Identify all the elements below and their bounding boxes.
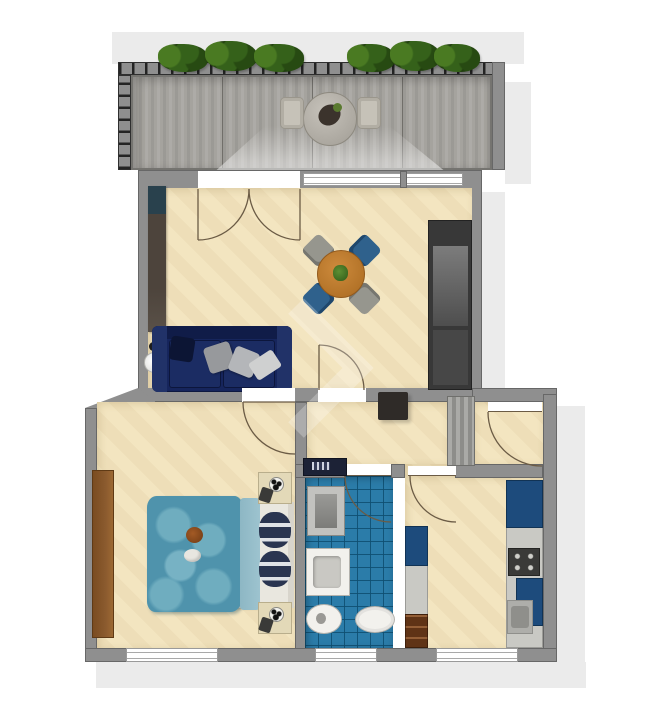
bidet-drain — [316, 613, 326, 624]
hallway-floor — [307, 402, 447, 464]
dining-table-plant — [333, 265, 348, 281]
balcony-left-railing — [118, 75, 131, 170]
shower-tray — [315, 494, 337, 528]
bathroom-door-leaf — [345, 466, 391, 476]
balcony-chair-left — [280, 97, 304, 129]
corridor-door-leaf — [488, 402, 542, 412]
planter-box-6 — [434, 44, 480, 72]
vanity-basin — [313, 556, 341, 588]
kitchen-top-wall — [455, 464, 543, 478]
bed-headboard — [288, 502, 294, 608]
bathroom-top-wall-right — [391, 464, 405, 478]
kitchen-door-leaf — [408, 466, 456, 476]
sofa-pillow-navy — [168, 335, 195, 362]
kitchen-drawer-unit — [405, 614, 428, 648]
hallway-wall-cabinet — [378, 392, 408, 420]
shadow-lower-right — [557, 406, 585, 668]
balcony-right-wall — [492, 62, 505, 170]
sofa-arm-left — [152, 326, 167, 392]
balcony-chair-right — [357, 97, 381, 129]
kitchen-fridge-cabinet — [506, 480, 543, 528]
planter-box-5 — [390, 41, 440, 71]
shadow-living-right — [482, 192, 505, 404]
sideboard — [148, 186, 166, 332]
wall-niche-lower — [433, 330, 468, 385]
hall-door-opening — [318, 388, 366, 402]
utility-shaft — [447, 396, 475, 466]
balcony-window — [303, 173, 463, 186]
bed-folded-blanket — [240, 498, 260, 610]
bedroom-window — [126, 648, 218, 662]
bed-toy-teddy — [186, 527, 203, 543]
balcony-door-opening — [198, 171, 300, 188]
washing-machine-display — [312, 462, 330, 470]
kitchen-cooktop — [508, 548, 540, 576]
wardrobe — [92, 470, 114, 638]
planter-box-2 — [205, 41, 257, 71]
planter-box-1 — [158, 44, 208, 72]
shadow-balcony-right — [505, 82, 531, 184]
planter-box-4 — [347, 44, 395, 72]
bedroom-door-opening — [242, 388, 295, 402]
kitchen-window — [436, 648, 518, 662]
sofa-arm-right — [277, 326, 292, 392]
planter-box-3 — [254, 44, 304, 72]
toilet — [355, 606, 395, 633]
bed-toy-white — [184, 549, 201, 562]
bathroom-window — [315, 648, 377, 662]
kitchen-right-wall — [543, 394, 557, 662]
shadow-bottom — [96, 662, 586, 688]
bed-pillow-2 — [259, 551, 291, 587]
balcony-table-plant — [333, 103, 342, 112]
wall-niche-inner — [433, 246, 468, 326]
balcony-window-mullion — [400, 171, 407, 188]
floor-plan — [0, 0, 648, 724]
bed-pillow-1 — [259, 512, 291, 548]
kitchen-left-cabinet-blue — [405, 526, 428, 566]
kitchen-sink-basin — [511, 606, 529, 628]
